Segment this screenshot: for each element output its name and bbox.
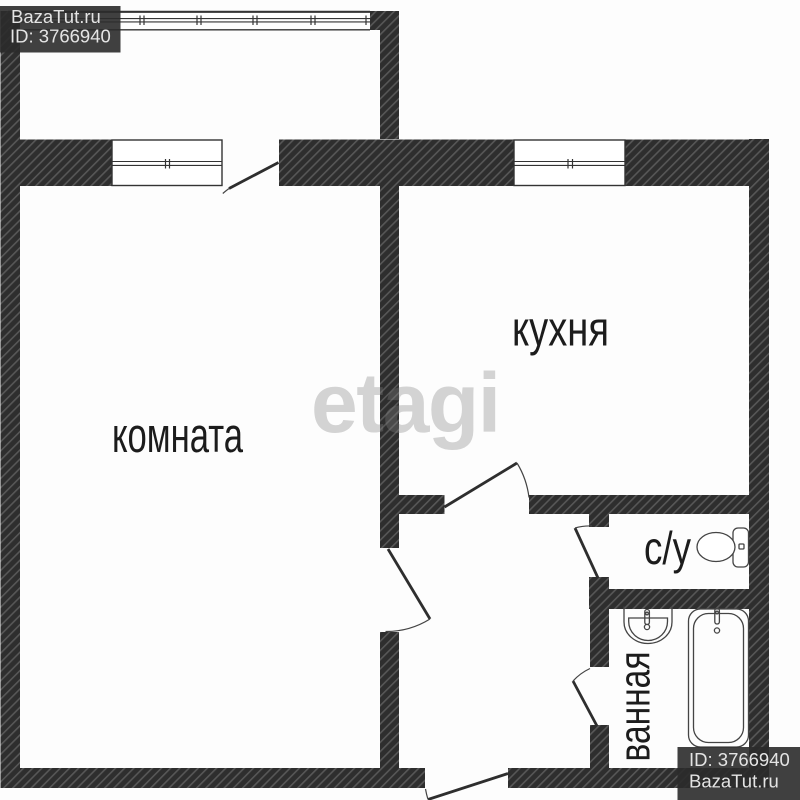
svg-text:с/у: с/у <box>644 522 691 574</box>
svg-text:кухня: кухня <box>512 302 609 356</box>
svg-text:BazaTut.ru: BazaTut.ru <box>689 771 779 792</box>
svg-text:etagi: etagi <box>311 356 500 450</box>
svg-text:ID: 3766940: ID: 3766940 <box>689 749 790 770</box>
svg-text:ванная: ванная <box>610 652 659 762</box>
svg-text:комната: комната <box>112 409 244 463</box>
svg-text:BazaTut.ru: BazaTut.ru <box>11 6 101 27</box>
svg-text:ID: 3766940: ID: 3766940 <box>10 25 111 46</box>
